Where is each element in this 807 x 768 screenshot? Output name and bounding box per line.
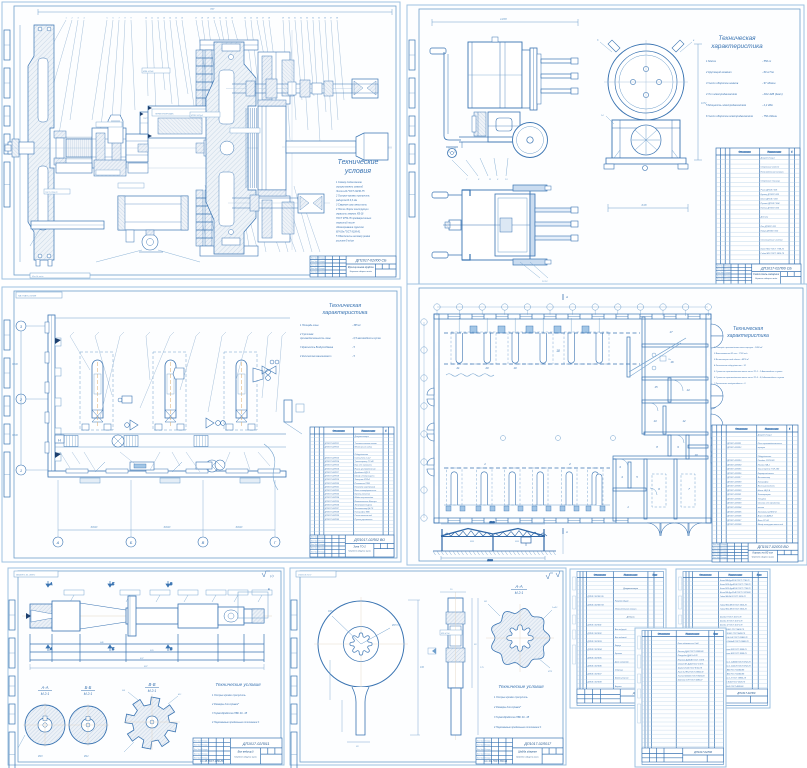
svg-text:- 750 об/мин: - 750 об/мин (762, 114, 777, 118)
svg-text:1х45°: 1х45° (552, 606, 558, 609)
svg-text:Шайба ударная: Шайба ударная (615, 677, 629, 680)
svg-text:ДП1017-02Л011: ДП1017-02Л011 (324, 443, 339, 445)
svg-text:А-А: А-А (41, 685, 49, 690)
svg-text:Обозначение: Обозначение (739, 152, 752, 154)
svg-text:Технические: Технические (338, 159, 379, 166)
svg-text:Болт М10-6gх30.58 ГОСТ 7798-70: Болт М10-6gх30.58 ГОСТ 7798-70 (720, 584, 751, 586)
svg-text:ДП1017-02Л020: ДП1017-02Л020 (726, 490, 742, 492)
svg-text:Чертеж общего вида: Чертеж общего вида (234, 756, 257, 759)
svg-text:Переход Ду50/40 ГОСТ 17378: Переход Ду50/40 ГОСТ 17378 (678, 658, 705, 661)
svg-text:Мойка корнеплодов: Мойка корнеплодов (355, 496, 374, 499)
svg-text:3 Термообработка НВС 40...45: 3 Термообработка НВС 40...45 (212, 712, 248, 715)
svg-text:ДП1017-02Л013: ДП1017-02Л013 (587, 641, 603, 643)
svg-text:ДП1017-02Л027: ДП1017-02Л027 (324, 508, 340, 510)
svg-text:Приме: Приме (713, 634, 718, 636)
svg-text:Ось ДП1017.011: Ось ДП1017.011 (761, 226, 776, 228)
svg-text:Вентилятор: Вентилятор (758, 477, 771, 479)
svg-text:4 Неуказанные предельные откло: 4 Неуказанные предельные отклонения ± (494, 726, 542, 729)
svg-text:Обозначение: Обозначение (735, 429, 748, 431)
svg-text:3 Кратность Воздухообмена: 3 Кратность Воздухообмена (300, 346, 334, 349)
svg-text:Крышка: Крышка (615, 653, 622, 655)
svg-text:Водонагреватель: Водонагреватель (758, 485, 775, 488)
svg-text:- АО2-42В (4квт): - АО2-42В (4квт) (762, 92, 783, 96)
svg-text:ДП1017-02Л020: ДП1017-02Л020 (324, 483, 340, 485)
svg-text:3 Сварные швы зачистить: 3 Сварные швы зачистить (336, 204, 368, 207)
svg-text:Чертеж общего вида: Чертеж общего вида (516, 756, 539, 759)
svg-text:Чертеж общего вида: Чертеж общего вида (752, 555, 775, 558)
svg-text:6000: 6000 (12, 362, 18, 366)
svg-text:ДП1017-02Л00 ПЗ: ДП1017-02Л00 ПЗ (587, 604, 605, 606)
svg-text:- 365 м²: - 365 м² (352, 324, 361, 327)
svg-text:копыт: копыт (758, 507, 765, 509)
svg-text:А: А (565, 295, 568, 299)
svg-text:Ступица: Ступица (615, 670, 623, 672)
svg-text:Диск нажимной: Диск нажимной (614, 660, 630, 663)
svg-text:Болт М10 ГОСТ 7798-70: Болт М10 ГОСТ 7798-70 (761, 248, 785, 250)
svg-text:ДП1017-02Л018: ДП1017-02Л018 (324, 476, 340, 478)
svg-text:ЗАКАЛИТЬ 40...45HRC: ЗАКАЛИТЬ 40...45HRC (16, 574, 36, 577)
svg-text:Корпус: Корпус (615, 645, 621, 647)
svg-text:ДП1017-02Л026: ДП1017-02Л026 (324, 504, 340, 506)
svg-text:Чертеж общего вида: Чертеж общего вида (350, 270, 373, 273)
svg-text:4 После сборки конструкции: 4 После сборки конструкции (336, 208, 369, 211)
svg-text:Н: Н (58, 438, 61, 443)
svg-text:Оборудование: Оборудование (355, 453, 369, 456)
svg-text:18: 18 (556, 349, 560, 353)
svg-text:ДП1017-02Л011: ДП1017-02Л011 (726, 443, 741, 445)
svg-text:Смеситель-запарник: Смеситель-запарник (753, 272, 780, 276)
svg-text:ДП1017-02Л011: ДП1017-02Л011 (242, 742, 270, 746)
svg-text:Шайба 12 ГОСТ 11371-78: Шайба 12 ГОСТ 11371-78 (720, 624, 743, 627)
svg-text:Монтажная схема: Монтажная схема (355, 447, 373, 449)
svg-text:Гайка М12-6Н.5 ГОСТ 5915-70: Гайка М12-6Н.5 ГОСТ 5915-70 (720, 607, 748, 610)
svg-text:Вал ведущий: Вал ведущий (615, 628, 627, 631)
svg-text:Пояснительная записка: Пояснительная записка (761, 171, 785, 173)
svg-text:Транспортер ТСН-160: Транспортер ТСН-160 (758, 469, 780, 471)
svg-text:покрытой после: покрытой после (336, 222, 355, 225)
svg-text:Наименование: Наименование (728, 575, 743, 577)
svg-text:4 Тип электродвигателя: 4 Тип электродвигателя (706, 92, 738, 96)
svg-text:2: 2 (568, 462, 571, 466)
svg-text:производительность зоны: производительность зоны (300, 337, 331, 340)
svg-text:ДП1017-02Л022: ДП1017-02Л022 (726, 498, 742, 500)
svg-text:Шайба ударная: Шайба ударная (518, 750, 537, 754)
svg-text:Документация: Документация (757, 434, 773, 436)
svg-text:корпуса: корпуса (758, 447, 766, 449)
svg-text:1 Острые кромки притупить: 1 Острые кромки притупить (212, 694, 246, 697)
svg-text:2 Крутящий момент: 2 Крутящий момент (705, 70, 733, 74)
svg-text:Техническая: Техническая (718, 35, 756, 42)
svg-text:Шайба 8 ГОСТ 11371-78: Шайба 8 ГОСТ 11371-78 (720, 616, 742, 619)
svg-text:радиусом R 0,3 мм: радиусом R 0,3 мм (335, 199, 357, 202)
svg-text:2 Вместимость 60 гол: 2 Вместимость 60 гол - 1700 кг/ч (713, 353, 748, 355)
svg-text:А: А (56, 540, 60, 545)
svg-text:Электрощит: Электрощит (758, 494, 771, 496)
svg-text:В-В: В-В (149, 682, 156, 687)
svg-text:Швеллер 10П ГОСТ 8240-97: Швеллер 10П ГОСТ 8240-97 (678, 679, 704, 682)
svg-text:R45: R45 (328, 610, 333, 613)
svg-text:6000: 6000 (515, 541, 519, 543)
svg-text:характеристика: характеристика (726, 333, 769, 339)
svg-text:1 Площадь производственного ко: 1 Площадь производственного корпуса - 12… (714, 346, 763, 349)
svg-text:Транспортер ТС-40: Транспортер ТС-40 (355, 460, 375, 463)
svg-text:Станок для обработки: Станок для обработки (758, 502, 781, 505)
svg-text:21: 21 (455, 366, 460, 370)
svg-text:ДП1017-02Л00 СБ: ДП1017-02Л00 СБ (587, 596, 605, 598)
svg-text:ДП1017-02Л019: ДП1017-02Л019 (726, 486, 742, 488)
svg-text:Агрегат АДМ-8: Агрегат АДМ-8 (757, 515, 774, 518)
svg-text:Документация: Документация (760, 158, 776, 160)
svg-text:В: В (202, 540, 205, 545)
svg-text:ГЕРМЕТИЗИРОВАТЬ: ГЕРМЕТИЗИРОВАТЬ (155, 113, 175, 116)
svg-text:ФЛ-03к ГОСТ 9109-81: ФЛ-03к ГОСТ 9109-81 (336, 231, 361, 234)
svg-text:Вентилятор Ц4-70: Вентилятор Ц4-70 (355, 507, 374, 510)
svg-text:ДП1017-02Л022: ДП1017-02Л022 (324, 490, 340, 492)
svg-text:Корпус на 60 гол: Корпус на 60 гол (753, 551, 774, 555)
svg-text:Бак для жидкости: Бак для жидкости (355, 464, 373, 467)
svg-text:4 Количество машиномест: 4 Количество машиномест (300, 355, 331, 358)
svg-text:Техническая: Техническая (733, 326, 763, 332)
svg-text:Насос центробежный: Насос центробежный (355, 467, 377, 470)
svg-text:Зона ТО-2: Зона ТО-2 (353, 544, 366, 548)
svg-text:Технологическая схема: Технологическая схема (355, 443, 378, 445)
svg-text:Измельчитель Волгарь: Измельчитель Волгарь (355, 501, 377, 503)
svg-text:ДП1017-02Л018: ДП1017-02Л018 (726, 481, 742, 483)
svg-text:Ø35 Н7: Ø35 Н7 (391, 624, 401, 627)
svg-text:4 Неуказанные предельные откло: 4 Неуказанные предельные отклонения ± (212, 721, 260, 724)
svg-text:ДП1017-02Л012: ДП1017-02Л012 (587, 633, 603, 635)
svg-text:А: А (565, 530, 568, 534)
svg-text:12: 12 (682, 419, 686, 423)
svg-text:Фланец Ду50 ГОСТ 12820-80: Фланец Ду50 ГОСТ 12820-80 (678, 650, 705, 653)
svg-text:Б: Б (130, 540, 133, 545)
svg-text:Ст 3пз ГОСТ 380-94: Ст 3пз ГОСТ 380-94 (484, 760, 508, 763)
svg-text:Наименование: Наименование (767, 152, 782, 154)
svg-text:окрасить эмалью ХВ-16: окрасить эмалью ХВ-16 (336, 213, 364, 216)
svg-text:14: 14 (686, 388, 690, 392)
svg-text:Насос НЦС-4: Насос НЦС-4 (758, 489, 771, 492)
svg-text:Весы РС-50: Весы РС-50 (758, 520, 770, 522)
svg-text:Вал ведущий: Вал ведущий (238, 750, 254, 754)
svg-text:15: 15 (654, 385, 658, 389)
svg-text:Литол-24 ГОСТ 21150-75: Литол-24 ГОСТ 21150-75 (335, 190, 365, 193)
svg-text:ДП1017-02Л028: ДП1017-02Л028 (726, 524, 742, 526)
svg-text:Болт М8-6gх20.58 ГОСТ 7798-70: Болт М8-6gх20.58 ГОСТ 7798-70 (720, 580, 750, 582)
svg-text:13: 13 (653, 419, 657, 423)
svg-text:(√): (√) (270, 574, 274, 578)
svg-text:обезжиривания грунтом: обезжиривания грунтом (336, 226, 364, 229)
svg-text:Дробилка КДУ-2: Дробилка КДУ-2 (354, 472, 371, 474)
svg-text:5 Обеспечить натяжку ремня: 5 Обеспечить натяжку ремня (336, 235, 371, 238)
svg-text:Запарник ЗПК-4: Запарник ЗПК-4 (355, 478, 371, 481)
svg-text:ДП1017-02Л00: ДП1017-02Л00 (693, 750, 712, 754)
svg-text:Кожух ДП1017.012: Кожух ДП1017.012 (761, 230, 779, 232)
svg-text:Обозначение: Обозначение (658, 634, 671, 636)
svg-text:Привод ДП1017.004: Привод ДП1017.004 (761, 202, 781, 205)
svg-text:ДП1017-02Л013: ДП1017-02Л013 (726, 460, 742, 462)
svg-text:Техническая: Техническая (329, 303, 362, 309)
svg-text:условия: условия (344, 168, 371, 175)
svg-text:767: 767 (210, 7, 215, 11)
svg-text:ДП1017-02Л025: ДП1017-02Л025 (726, 511, 742, 513)
svg-text:Стол монтажный: Стол монтажный (355, 514, 373, 517)
svg-text:Ø42: Ø42 (83, 755, 89, 758)
svg-text:ДП1017-02Л025: ДП1017-02Л025 (324, 501, 340, 503)
svg-text:ДП1017-02Л016: ДП1017-02Л016 (726, 473, 742, 475)
svg-text:3 Вентиляционный объем: 3 Вентиляционный объем - 4870 м³ (714, 358, 749, 361)
svg-text:М 2:1: М 2:1 (148, 689, 157, 693)
svg-text:Лист Б-ПН-4 ГОСТ 19903-74: Лист Б-ПН-4 ГОСТ 19903-74 (677, 671, 704, 674)
svg-text:2 Размеры для справок*: 2 Размеры для справок* (493, 706, 521, 709)
svg-text:6 Число оборотов электродвигат: 6 Число оборотов электродвигателя (706, 114, 753, 118)
svg-text:Наименование: Наименование (765, 429, 780, 431)
svg-text:НА ПЛАН-СХЕМЕ: НА ПЛАН-СХЕМЕ (18, 295, 37, 298)
svg-text:ДП1017-02Л014: ДП1017-02Л014 (587, 648, 602, 651)
svg-text:6000: 6000 (236, 525, 243, 529)
svg-text:Ø48: Ø48 (37, 755, 43, 758)
svg-text:Ст 45 ГОСТ 1050-88: Ст 45 ГОСТ 1050-88 (200, 760, 224, 763)
svg-text:648: 648 (641, 203, 646, 207)
svg-text:Чертеж общего вида: Чертеж общего вида (348, 550, 371, 553)
svg-text:180: 180 (420, 666, 425, 669)
svg-text:1: 1 (20, 468, 22, 473)
svg-text:Инв № подл.: Инв № подл. (32, 275, 44, 278)
svg-text:ДП1017-02Л019: ДП1017-02Л019 (324, 479, 340, 481)
svg-text:ДП1017-02Л015: ДП1017-02Л015 (324, 465, 340, 467)
svg-text:Питатель ПЗМ: Питатель ПЗМ (355, 483, 370, 485)
svg-text:ДП1017-02Л021: ДП1017-02Л021 (726, 494, 741, 496)
svg-text:Ø100 Н7/р6: Ø100 Н7/р6 (190, 115, 204, 117)
svg-text:Рисунок общий: Рисунок общий (615, 599, 629, 602)
svg-text:2 Суточная: 2 Суточная (299, 333, 314, 336)
svg-text:ДП1017-02Л015: ДП1017-02Л015 (726, 469, 742, 471)
svg-text:Бункер-дозатор: Бункер-дозатор (355, 493, 371, 496)
svg-text:ДП1017-02Л013: ДП1017-02Л013 (324, 458, 340, 460)
svg-text:осуществлять смазкой: осуществлять смазкой (336, 186, 364, 189)
svg-text:2 Размеры для справок*: 2 Размеры для справок* (211, 703, 239, 706)
svg-text:Кормораздатчик: Кормораздатчик (758, 472, 775, 475)
svg-text:Патрубок Ду50 L=120: Патрубок Ду50 L=120 (678, 655, 699, 657)
svg-text:- 550 кг: - 550 кг (762, 59, 772, 63)
svg-text:Калорифер: Калорифер (758, 480, 770, 483)
svg-text:ДП1017-02Л00: ДП1017-02Л00 (736, 691, 755, 695)
svg-text:6000: 6000 (12, 433, 18, 437)
svg-text:- 2,2 кВт: - 2,2 кВт (762, 103, 774, 107)
svg-text:Наименование: Наименование (361, 431, 376, 433)
svg-text:Весы платформенные: Весы платформенные (355, 489, 378, 492)
svg-text:ДП1017-02Л00 СБ: ДП1017-02Л00 СБ (355, 259, 387, 263)
svg-text:Клин задвижки ст 3 t=6: Клин задвижки ст 3 t=6 (678, 642, 700, 645)
svg-text:усилием 5 кг/см: усилием 5 кг/см (335, 240, 354, 243)
svg-text:ДП1017-02Л016: ДП1017-02Л016 (587, 665, 603, 667)
svg-text:ДП1017-02Л017: ДП1017-02Л017 (726, 477, 742, 479)
svg-text:ДП1017-02Л012: ДП1017-02Л012 (726, 447, 742, 449)
svg-text:10 12: 10 12 (542, 281, 548, 283)
svg-text:Уголок 50х50х5 ГОСТ 8509-93: Уголок 50х50х5 ГОСТ 8509-93 (678, 676, 706, 678)
svg-text:ДП1017-02Л012: ДП1017-02Л012 (324, 447, 340, 449)
svg-text:Приме: Приме (757, 575, 762, 577)
svg-text:Смеситель С-12: Смеситель С-12 (355, 458, 372, 460)
svg-text:Ø85 Н7/к6: Ø85 Н7/к6 (142, 71, 154, 73)
svg-text:Документация: Документация (622, 588, 639, 590)
svg-text:характеристика: характеристика (321, 310, 367, 316)
svg-text:Гайка М10-6Н.5 ГОСТ 5915-70: Гайка М10-6Н.5 ГОСТ 5915-70 (720, 603, 748, 606)
svg-text:1 Площадь зоны: 1 Площадь зоны (300, 324, 319, 327)
svg-text:6000: 6000 (91, 525, 98, 529)
svg-text:Рама ДП1017.001: Рама ДП1017.001 (761, 189, 778, 191)
svg-text:ДП1017-02Л017: ДП1017-02Л017 (324, 472, 340, 474)
svg-text:45°: 45° (178, 693, 181, 696)
svg-text:ДП1017-02Л016: ДП1017-02Л016 (324, 468, 340, 470)
svg-text:Ø35 Н7/к6: Ø35 Н7/к6 (440, 633, 450, 635)
svg-text:Поилка ПА-1: Поилка ПА-1 (758, 463, 770, 466)
svg-text:Обозначение: Обозначение (594, 575, 607, 577)
svg-text:Ø72: Ø72 (547, 671, 553, 673)
svg-text:Пульт управления: Пульт управления (355, 519, 374, 521)
svg-text:характеристика: характеристика (710, 43, 763, 50)
svg-text:Втулка: Втулка (615, 686, 622, 688)
svg-text:План производственного: План производственного (758, 442, 783, 445)
svg-text:4 Количество оборудования: 4 Количество оборудования - 12 (714, 364, 747, 367)
svg-text:Винт М6-6gх12.48 ГОСТ 17473-80: Винт М6-6gх12.48 ГОСТ 17473-80 (720, 591, 751, 594)
svg-text:20: 20 (484, 366, 489, 370)
svg-text:ДП1017-02Л021: ДП1017-02Л021 (324, 486, 339, 488)
svg-text:3 Число оборотов шнеков: 3 Число оборотов шнеков (706, 81, 739, 85)
svg-text:ДП1017-02Л026: ДП1017-02Л026 (726, 516, 742, 518)
svg-text:ДП1017-02Л014: ДП1017-02Л014 (726, 463, 741, 466)
svg-text:Калорифер КВБ: Калорифер КВБ (355, 511, 371, 514)
svg-text:Бункер ДП1017.002: Бункер ДП1017.002 (761, 194, 780, 196)
svg-text:Чертеж общего вида: Чертеж общего вида (755, 277, 778, 280)
svg-text:М 2:1: М 2:1 (84, 692, 93, 696)
svg-text:ДП1017-02Л017: ДП1017-02Л017 (523, 742, 552, 746)
svg-text:ДП1017-02Л029: ДП1017-02Л029 (324, 515, 340, 517)
svg-text:Электротельфер: Электротельфер (355, 503, 373, 506)
svg-text:19: 19 (513, 366, 517, 370)
svg-text:Документация: Документация (354, 436, 370, 438)
svg-text:ДП1017-02Л03 ВО: ДП1017-02Л03 ВО (757, 545, 789, 549)
svg-text:Конвейер скребковый: Конвейер скребковый (355, 485, 376, 488)
svg-text:Обозначение: Обозначение (699, 575, 712, 577)
svg-text:ДП1017-02Л024: ДП1017-02Л024 (726, 506, 741, 509)
svg-text:Труба 57х3,5 ГОСТ 8732-78: Труба 57х3,5 ГОСТ 8732-78 (678, 667, 703, 669)
svg-text:А-А: А-А (514, 584, 522, 589)
svg-text:1 Масса: 1 Масса (706, 59, 716, 63)
svg-text:Шайба 10 ГОСТ 11371-78: Шайба 10 ГОСТ 11371-78 (720, 620, 743, 623)
svg-text:Колесо ДП1017.005: Колесо ДП1017.005 (761, 208, 780, 210)
svg-text:Детали: Детали (626, 617, 636, 619)
svg-text:ДП1017-02Л02 ВО: ДП1017-02Л02 ВО (353, 538, 385, 542)
svg-text:Приме: Приме (653, 575, 658, 577)
svg-text:Б-Б: Б-Б (85, 685, 92, 690)
svg-text:6000: 6000 (470, 541, 474, 543)
svg-text:Шнек ДП1017.003: Шнек ДП1017.003 (761, 199, 779, 201)
svg-text:17: 17 (669, 330, 673, 334)
svg-text:Холодильник МХУ-8: Холодильник МХУ-8 (757, 510, 778, 513)
svg-text:3 Термообработка НВС 40...45: 3 Термообработка НВС 40...45 (494, 716, 530, 719)
svg-text:ДП1017-02Л023: ДП1017-02Л023 (726, 503, 742, 505)
svg-text:Технические условия: Технические условия (498, 684, 544, 689)
svg-text:Стандартные изделия: Стандартные изделия (761, 238, 784, 241)
svg-text:ГОСТ 9754-76 предварительно: ГОСТ 9754-76 предварительно (336, 217, 372, 220)
svg-text:Вал ведомый: Вал ведомый (615, 636, 628, 639)
svg-text:Наименование: Наименование (686, 634, 701, 636)
svg-text:Оборудование: Оборудование (758, 455, 772, 458)
svg-text:ДП1017-02Л015: ДП1017-02Л015 (587, 657, 603, 659)
svg-text:Сборочный чертеж: Сборочный чертеж (761, 166, 780, 169)
svg-text:6 Суточная производительность: 6 Суточная производительность зоны ТО-2 … (714, 376, 785, 379)
svg-text:ДП1017-02Л017: ДП1017-02Л017 (587, 674, 603, 676)
svg-text:ДП1017-02Л028: ДП1017-02Л028 (324, 512, 340, 514)
svg-text:5 Мощность электродвигателя: 5 Мощность электродвигателя (706, 103, 747, 107)
svg-text:ДП1017-02Л030: ДП1017-02Л030 (324, 519, 340, 521)
svg-text:Гайка М8-6Н.5 ГОСТ 5915-70: Гайка М8-6Н.5 ГОСТ 5915-70 (720, 595, 747, 598)
svg-text:Фрикционная муфта: Фрикционная муфта (348, 265, 374, 269)
svg-text:Шкаф электрощита: Шкаф электрощита (355, 475, 376, 478)
svg-text:Наименование: Наименование (624, 575, 639, 577)
svg-text:ДП1017-02Л023: ДП1017-02Л023 (324, 494, 340, 496)
svg-text:Отвод 90° Ду50 ГОСТ 17375: Отвод 90° Ду50 ГОСТ 17375 (678, 662, 705, 665)
svg-text:ДП1017-02Л018: ДП1017-02Л018 (587, 682, 603, 684)
svg-text:- 0,5 автомобиля в сутки: - 0,5 автомобиля в сутки (352, 337, 382, 340)
svg-text:Технические условия: Технические условия (215, 682, 261, 687)
svg-text:ДП1017-02Л00 СБ: ДП1017-02Л00 СБ (760, 266, 792, 270)
svg-text:1 Смазку подшипников: 1 Смазку подшипников (336, 181, 362, 184)
svg-text:- 60 кг*см: - 60 кг*см (762, 70, 774, 74)
svg-text:Детали: Детали (760, 217, 769, 219)
svg-text:СТАЛЬ 45 ГОСТ: СТАЛЬ 45 ГОСТ (298, 574, 312, 577)
svg-text:2 Острые кромки притупить: 2 Острые кромки притупить (335, 195, 370, 198)
svg-text:Стойло СОСК-80: Стойло СОСК-80 (758, 459, 775, 462)
svg-text:10: 10 (694, 453, 698, 457)
svg-text:ДП1017-02Л024: ДП1017-02Л024 (324, 496, 339, 499)
svg-text:5 Суточная производительность: 5 Суточная производительность зоны ТО-1 … (714, 370, 783, 373)
svg-text:Обозначение: Обозначение (333, 431, 346, 433)
svg-text:1 Острые кромки притупить: 1 Острые кромки притупить (494, 696, 528, 699)
svg-text:1208: 1208 (500, 17, 507, 21)
svg-text:Пояснительная записка: Пояснительная записка (615, 608, 637, 610)
svg-text:Болт М12-6gх40.58 ГОСТ 7798-70: Болт М12-6gх40.58 ГОСТ 7798-70 (720, 587, 751, 590)
svg-text:7 Кратность воздухообмена: 7 Кратность воздухообмена - 3 (714, 382, 746, 385)
svg-text:ГОСТ 2789-73: ГОСТ 2789-73 (45, 192, 58, 194)
svg-text:ДП1017-02Л027: ДП1017-02Л027 (726, 520, 742, 522)
svg-text:ДП1017-02Л014: ДП1017-02Л014 (324, 460, 339, 463)
svg-text:ДП1017-02Л011: ДП1017-02Л011 (587, 625, 602, 627)
svg-text:М 2:1: М 2:1 (41, 692, 50, 696)
svg-text:Сборочные единицы: Сборочные единицы (761, 179, 781, 182)
svg-text:Тельфер: Тельфер (758, 497, 767, 500)
svg-text:Гайка М10 ГОСТ 5915-70: Гайка М10 ГОСТ 5915-70 (761, 252, 785, 255)
svg-text:15а: 15а (668, 359, 671, 361)
svg-text:- 97 об/мин: - 97 об/мин (762, 81, 776, 85)
svg-text:Шкаф инструментальный: Шкаф инструментальный (758, 523, 784, 526)
svg-text:М 2:1: М 2:1 (515, 591, 524, 595)
svg-text:6000: 6000 (164, 525, 171, 529)
